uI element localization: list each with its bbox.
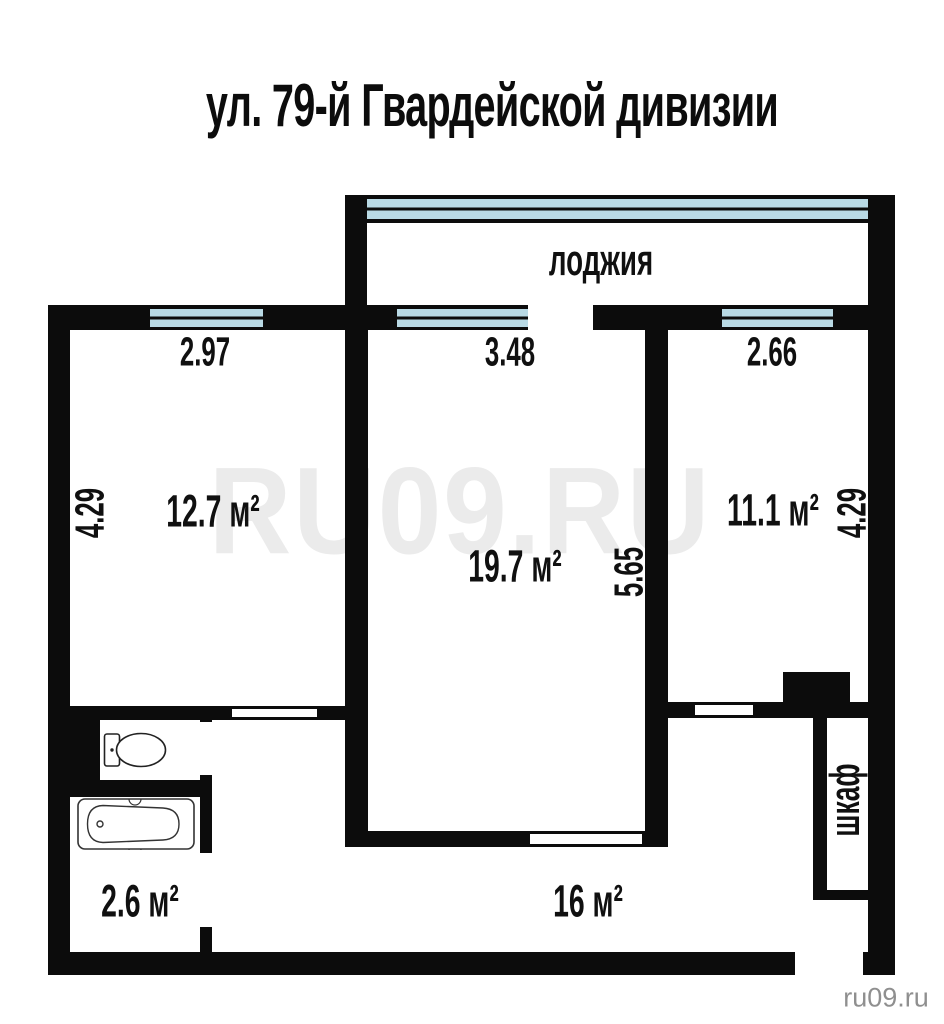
window-living — [397, 305, 528, 330]
dim-living-width: 3.48 — [485, 332, 535, 373]
floor-plan: ул. 79-й Гвардейской дивизии RU09.RU — [0, 0, 944, 1024]
dim-room2-height: 4.29 — [832, 488, 873, 538]
outer-wall-bottom — [48, 952, 895, 975]
wc-duct-block — [70, 706, 100, 780]
dim-living-height: 5.65 — [609, 547, 650, 597]
area-bath: 2.6 м² — [101, 879, 179, 924]
door-loggia — [528, 305, 593, 330]
door-room1 — [232, 706, 317, 720]
outer-wall-left — [48, 305, 70, 975]
page-title: ул. 79-й Гвардейской дивизии — [206, 76, 778, 136]
watermark-corner: ru09.ru — [843, 985, 929, 1012]
loggia-wall-left — [345, 195, 367, 307]
outer-wall-right — [868, 195, 895, 975]
closet-label: шкаф — [824, 763, 866, 836]
closet-wall-bottom — [813, 890, 870, 900]
door-bath — [200, 853, 212, 927]
area-living: 19.7 м² — [468, 544, 561, 589]
door-wc — [200, 722, 212, 775]
loggia-glazing-band — [367, 195, 868, 223]
door-living — [530, 831, 642, 847]
window-room2 — [722, 305, 833, 330]
door-entrance — [795, 952, 863, 975]
toilet-icon — [103, 730, 167, 770]
door-room2 — [695, 702, 753, 718]
dim-room1-width: 2.97 — [180, 332, 230, 373]
wall-room2-bottom — [645, 702, 895, 718]
bathtub-icon — [77, 798, 195, 850]
wall-wc-bath-divider — [70, 780, 212, 797]
dim-room2-width: 2.66 — [747, 332, 797, 373]
area-room2: 11.1 м² — [727, 488, 819, 533]
area-hall: 16 м² — [553, 879, 623, 924]
wall-room1-living — [345, 305, 368, 847]
area-room1: 12.7 м² — [166, 489, 259, 534]
dim-room1-height: 4.29 — [70, 488, 111, 538]
vent-shaft-block — [783, 672, 850, 702]
window-room1 — [150, 305, 263, 330]
loggia-label: лоджия — [549, 239, 653, 283]
